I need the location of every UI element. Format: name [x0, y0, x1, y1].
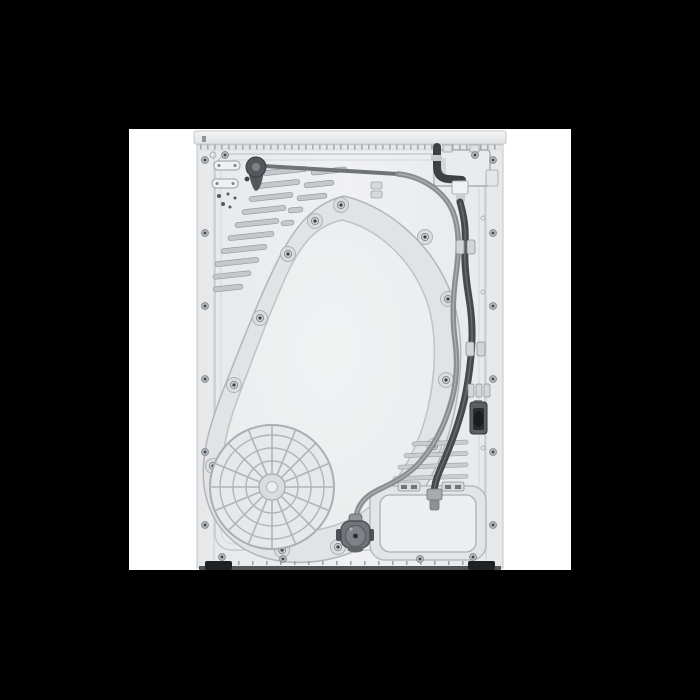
elbow-clip — [431, 155, 442, 161]
drain-connector — [470, 400, 487, 434]
top-panel-edge — [194, 131, 506, 144]
fan-grille — [210, 425, 334, 549]
cord-connector — [452, 181, 468, 194]
service-panel-cover — [380, 495, 476, 552]
dryer-rear-view — [194, 131, 506, 570]
product-photo-canvas: Rear view of a white tumble dryer - stud… — [0, 0, 700, 700]
cap-notch — [202, 136, 206, 142]
product-photo-stage: Rear view of a white tumble dryer - stud… — [0, 0, 700, 700]
bottom-edge-shadow — [199, 566, 501, 570]
